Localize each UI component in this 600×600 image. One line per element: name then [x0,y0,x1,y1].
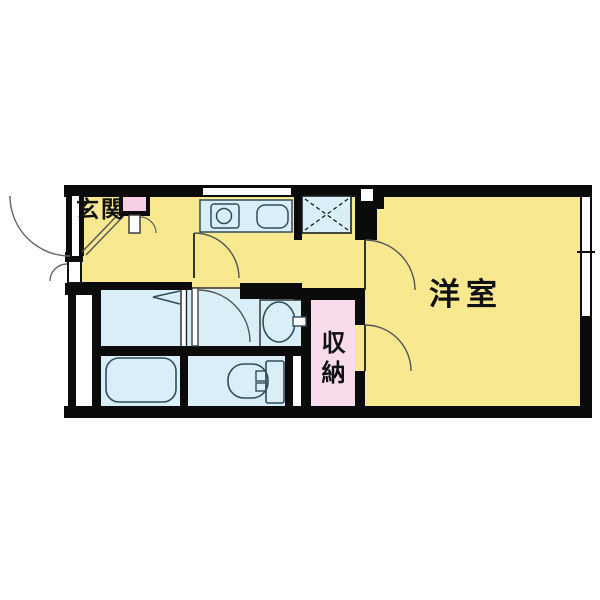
wall-corridor-bottom [80,282,192,290]
wall-washerpan-left [294,197,302,240]
wall-toilet-right [285,356,293,406]
wall-partition-seg3 [355,371,365,406]
meter-box-door-swing [50,264,67,281]
room-bath-anteroom [101,290,180,346]
wall-basin-stub [240,283,302,299]
room-bathroom [101,356,180,406]
washroom-door-leaf [192,288,198,346]
pipe-space-gap-left [76,295,92,406]
water-heater-door [129,215,140,233]
wall-partition-step [377,185,384,209]
wall-mid-horizontal [97,346,301,356]
western-room-label: 洋室 [406,279,526,310]
wall-partition-seg2 [355,290,365,325]
gap-toilet-closet [293,356,301,406]
genkan-label: 玄関 [76,198,126,221]
meter-box-door [68,261,81,283]
entrance-door-swing [10,196,70,256]
wall-toilet-left [180,346,188,406]
washer-pan-icon [302,196,351,233]
room-toilet [188,356,285,406]
faucet-icon [293,317,306,326]
wall-entrance-jamb-outer [66,196,72,256]
wall-bottom [64,406,592,418]
wall-top [64,185,592,197]
wall-left-lower [68,295,76,406]
wall-closet-left [301,288,311,406]
floor-plan: 玄関 洋室 収納 [0,0,600,600]
pillar-notch [361,189,373,201]
kitchen-window [203,188,291,195]
balcony-window [582,197,590,316]
water-heater-box [123,197,146,211]
closet-label: 収納 [318,330,342,390]
